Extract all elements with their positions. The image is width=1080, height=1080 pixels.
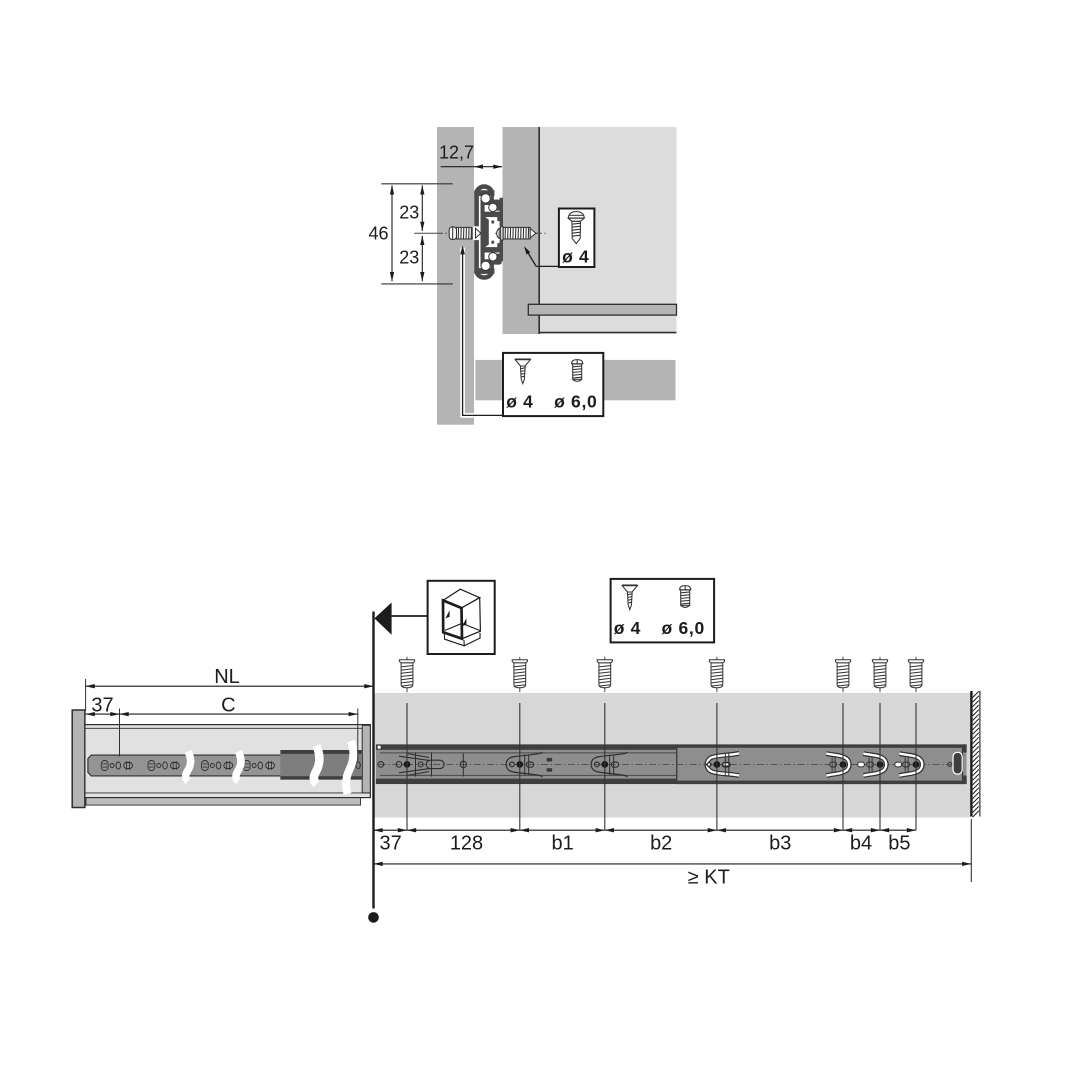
svg-text:23: 23: [399, 203, 419, 223]
svg-text:46: 46: [368, 223, 388, 243]
svg-text:≥ KT: ≥ KT: [688, 866, 730, 888]
svg-text:ø 4: ø 4: [562, 247, 589, 267]
svg-text:37: 37: [91, 694, 113, 716]
svg-text:ø 6,0: ø 6,0: [554, 392, 597, 412]
svg-text:12,7: 12,7: [439, 143, 474, 163]
svg-text:ø 4: ø 4: [614, 618, 641, 638]
svg-text:b1: b1: [551, 833, 573, 855]
svg-text:b3: b3: [769, 833, 791, 855]
svg-text:b5: b5: [888, 833, 910, 855]
svg-text:ø 4: ø 4: [506, 392, 533, 412]
svg-text:C: C: [221, 694, 235, 716]
svg-text:37: 37: [379, 833, 401, 855]
svg-text:ø 6,0: ø 6,0: [662, 618, 705, 638]
svg-text:NL: NL: [214, 666, 240, 688]
svg-text:128: 128: [450, 833, 483, 855]
svg-text:b2: b2: [650, 833, 672, 855]
svg-text:b4: b4: [850, 833, 872, 855]
svg-text:23: 23: [399, 248, 419, 268]
